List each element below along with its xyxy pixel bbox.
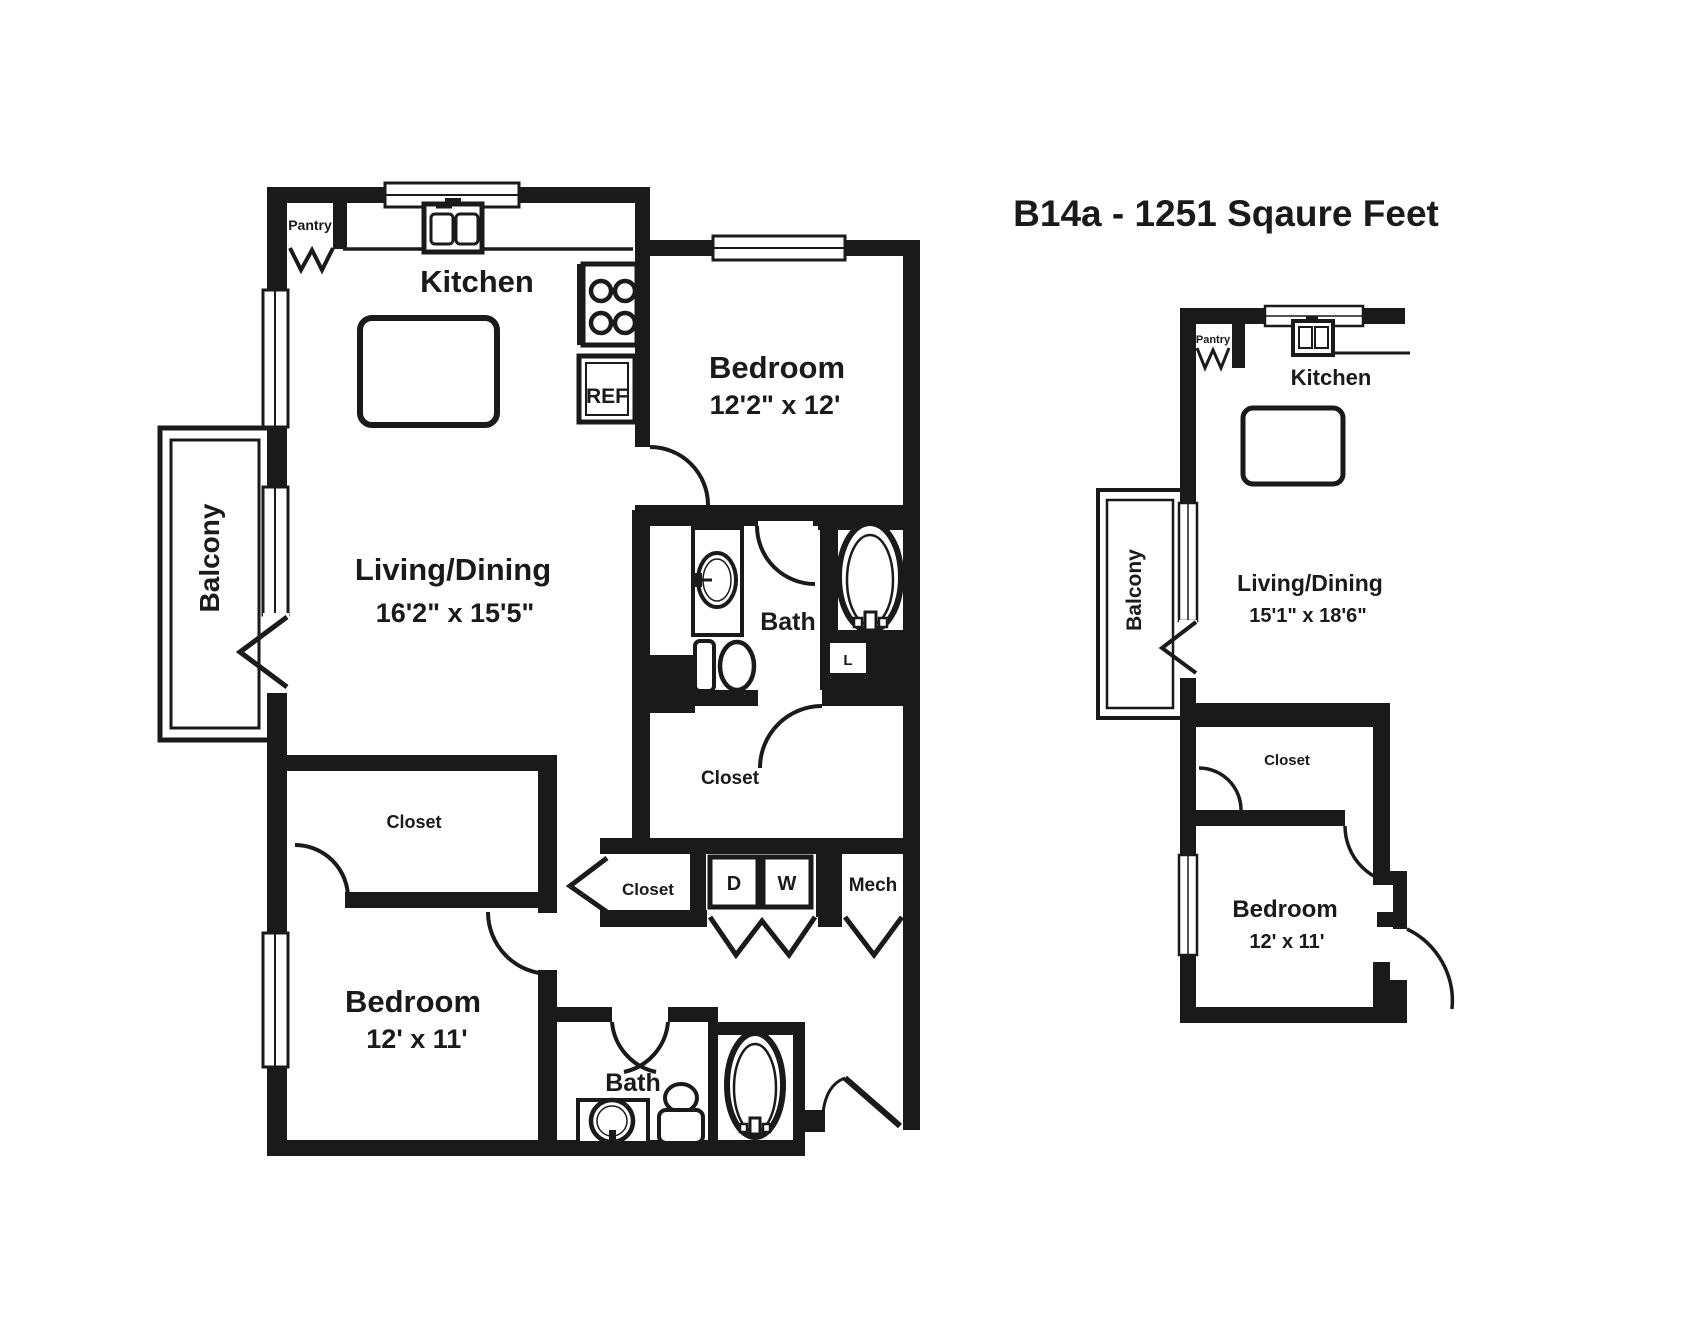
kitchen-sink-icon	[1293, 316, 1333, 355]
laundry-bifold-door	[710, 917, 815, 955]
window	[1179, 503, 1197, 621]
bath1-vanity-sink-icon	[693, 528, 742, 635]
window	[263, 290, 288, 427]
fridge-label: REF	[586, 385, 628, 408]
bedroom-label: Bedroom	[1232, 896, 1337, 923]
pantry-bifold-door	[290, 248, 333, 270]
mech-bifold-door	[845, 917, 902, 955]
bedroom2-closet-label: Closet	[386, 812, 441, 832]
kitchen-label: Kitchen	[1291, 365, 1372, 390]
balcony-door	[1162, 620, 1197, 678]
mech-label: Mech	[849, 875, 898, 896]
bedroom2-dims: 12' x 11'	[366, 1024, 467, 1054]
living-dining-label: Living/Dining	[355, 552, 551, 587]
bedroom1-dims: 12'2" x 12'	[710, 390, 841, 420]
washer-label: W	[778, 873, 797, 895]
bedroom2-label: Bedroom	[345, 984, 481, 1019]
bedroom-dims: 12' x 11'	[1249, 931, 1324, 953]
stove-icon	[583, 264, 637, 345]
floor-plan-drawing: Pantry Kitchen REF Living/Dining 16'2" x…	[0, 0, 1700, 1317]
pantry-label: Pantry	[288, 217, 332, 233]
bath2-label: Bath	[605, 1069, 661, 1097]
living-dining-label: Living/Dining	[1237, 570, 1383, 596]
toilet-icon	[695, 641, 754, 691]
entry-door	[823, 1078, 900, 1126]
living-dining-dims: 16'2" x 15'5"	[376, 598, 535, 628]
kitchen-label: Kitchen	[420, 264, 534, 299]
balcony-door	[240, 613, 289, 693]
closet-label: Closet	[1264, 752, 1310, 769]
door-swing-arcs	[1199, 768, 1452, 1009]
pantry-bifold-door	[1197, 348, 1229, 368]
toilet-icon	[659, 1084, 703, 1143]
bedroom1-label: Bedroom	[709, 350, 845, 385]
walkin-closet-label: Closet	[701, 768, 760, 789]
kitchen-island	[360, 318, 497, 425]
balcony-label: Balcony	[1123, 549, 1146, 631]
floor-plan-page: Pantry Kitchen REF Living/Dining 16'2" x…	[0, 0, 1700, 1317]
main-unit: Pantry Kitchen REF Living/Dining 16'2" x…	[160, 183, 920, 1156]
kitchen-island	[1243, 408, 1343, 484]
bathtub-icon	[839, 523, 901, 631]
bathtub-icon	[727, 1033, 783, 1137]
window	[713, 236, 845, 260]
hall-closet-label: Closet	[622, 880, 674, 899]
closet-angled-door	[570, 858, 607, 912]
dryer-label: D	[727, 873, 741, 895]
plan-title: B14a - 1251 Sqaure Feet	[1013, 193, 1439, 234]
bath2-vanity-sink-icon	[578, 1100, 648, 1143]
window	[1179, 855, 1197, 955]
kitchen-sink-icon	[424, 198, 482, 252]
alt-unit: Pantry Kitchen Balcony Living/Dining 15'…	[1098, 306, 1452, 1023]
living-dining-dims: 15'1" x 18'6"	[1249, 605, 1366, 627]
window	[263, 933, 288, 1067]
pantry-label: Pantry	[1196, 334, 1231, 346]
balcony-label: Balcony	[194, 503, 225, 612]
window	[263, 487, 288, 615]
bath1-label: Bath	[760, 608, 816, 636]
linen-label: L	[843, 652, 852, 669]
